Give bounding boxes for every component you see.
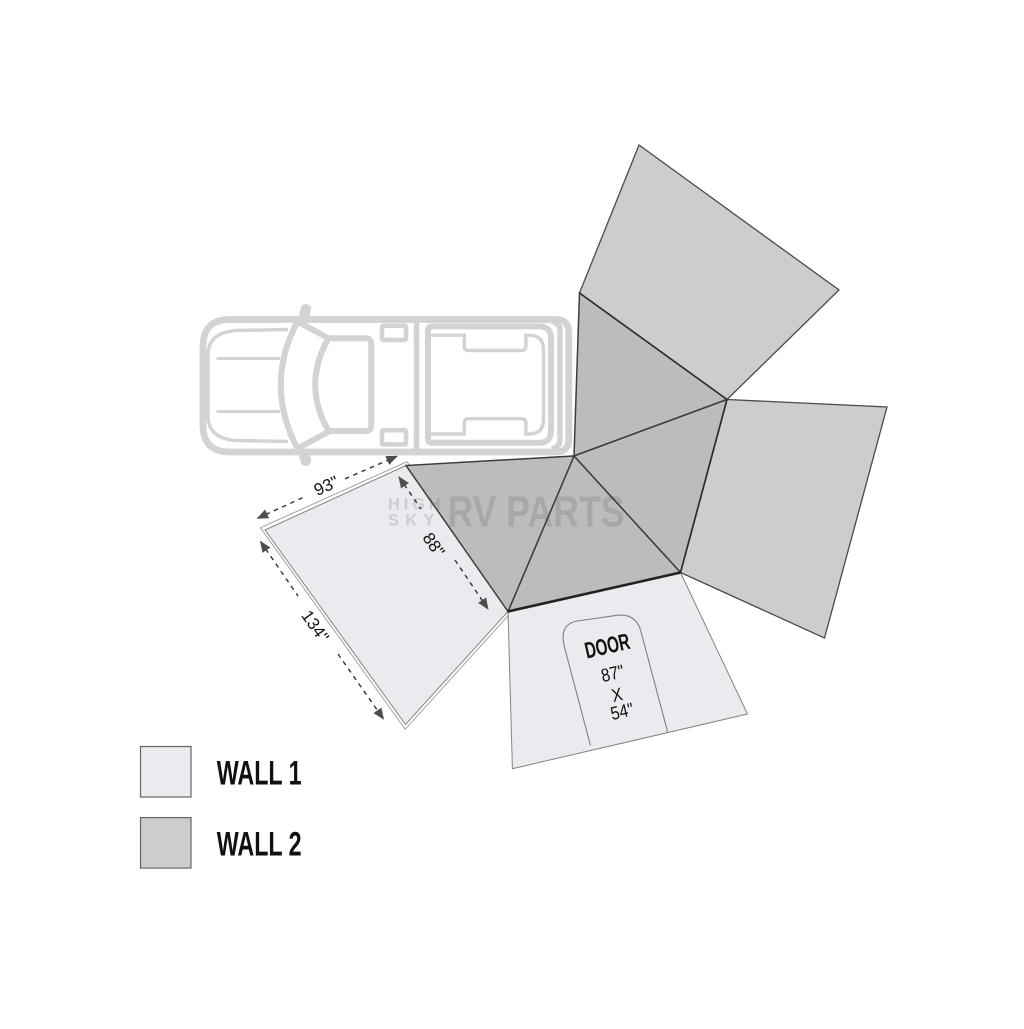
svg-text:RV PARTS: RV PARTS	[448, 488, 625, 536]
svg-text:WALL 1: WALL 1	[217, 755, 302, 792]
svg-text:SKY: SKY	[388, 512, 441, 530]
svg-text:WALL 2: WALL 2	[217, 826, 302, 863]
